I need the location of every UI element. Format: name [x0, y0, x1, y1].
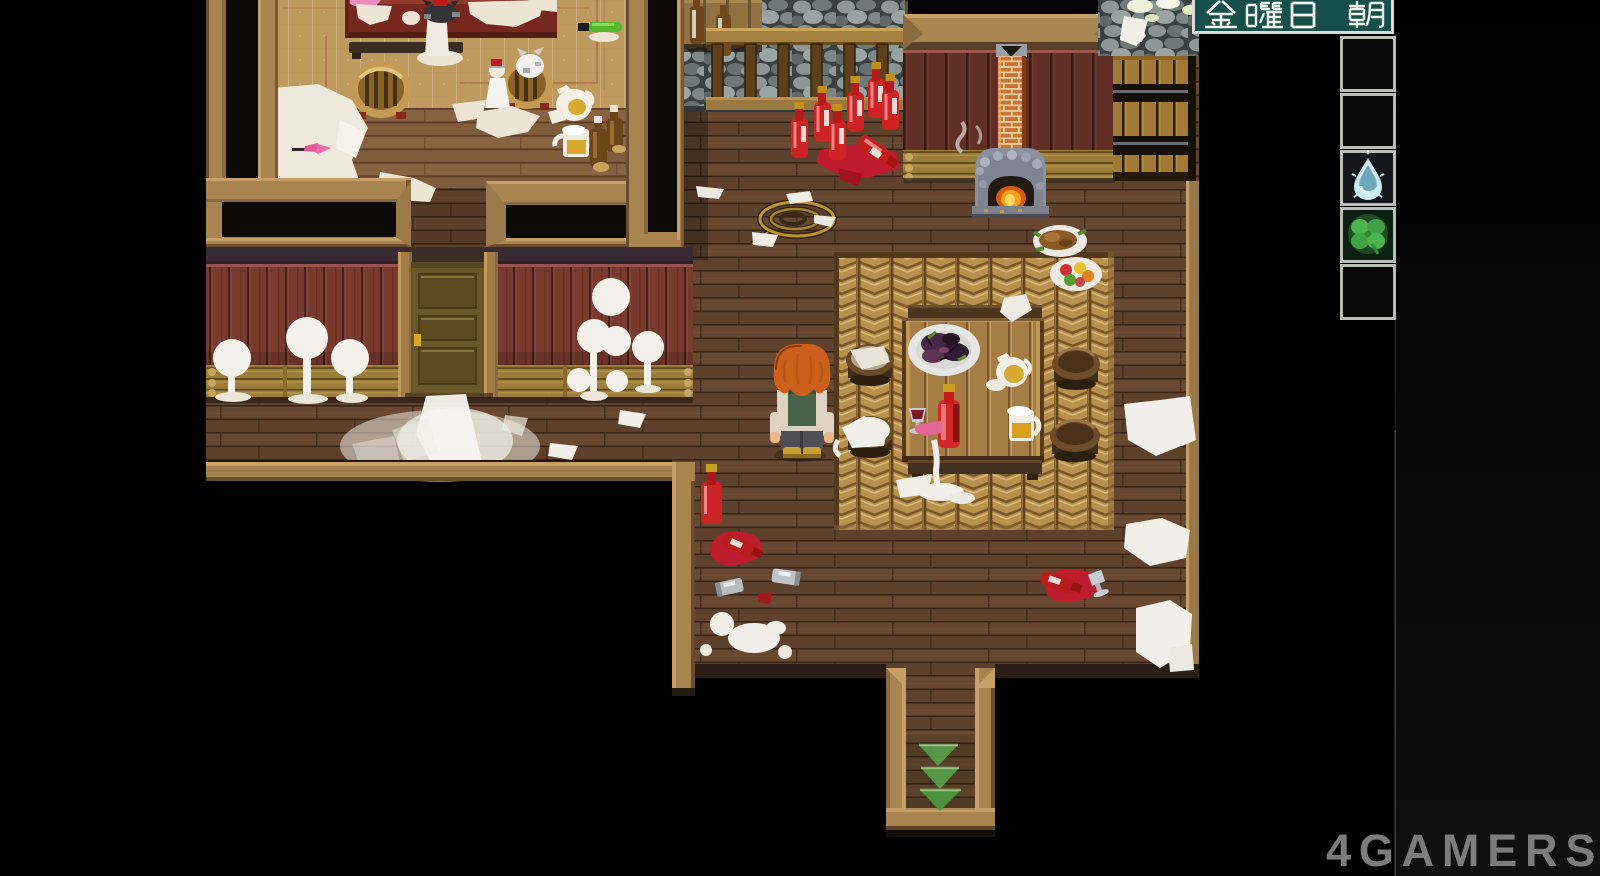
svg-text:4GAMERS: 4GAMERS — [1326, 825, 1600, 876]
